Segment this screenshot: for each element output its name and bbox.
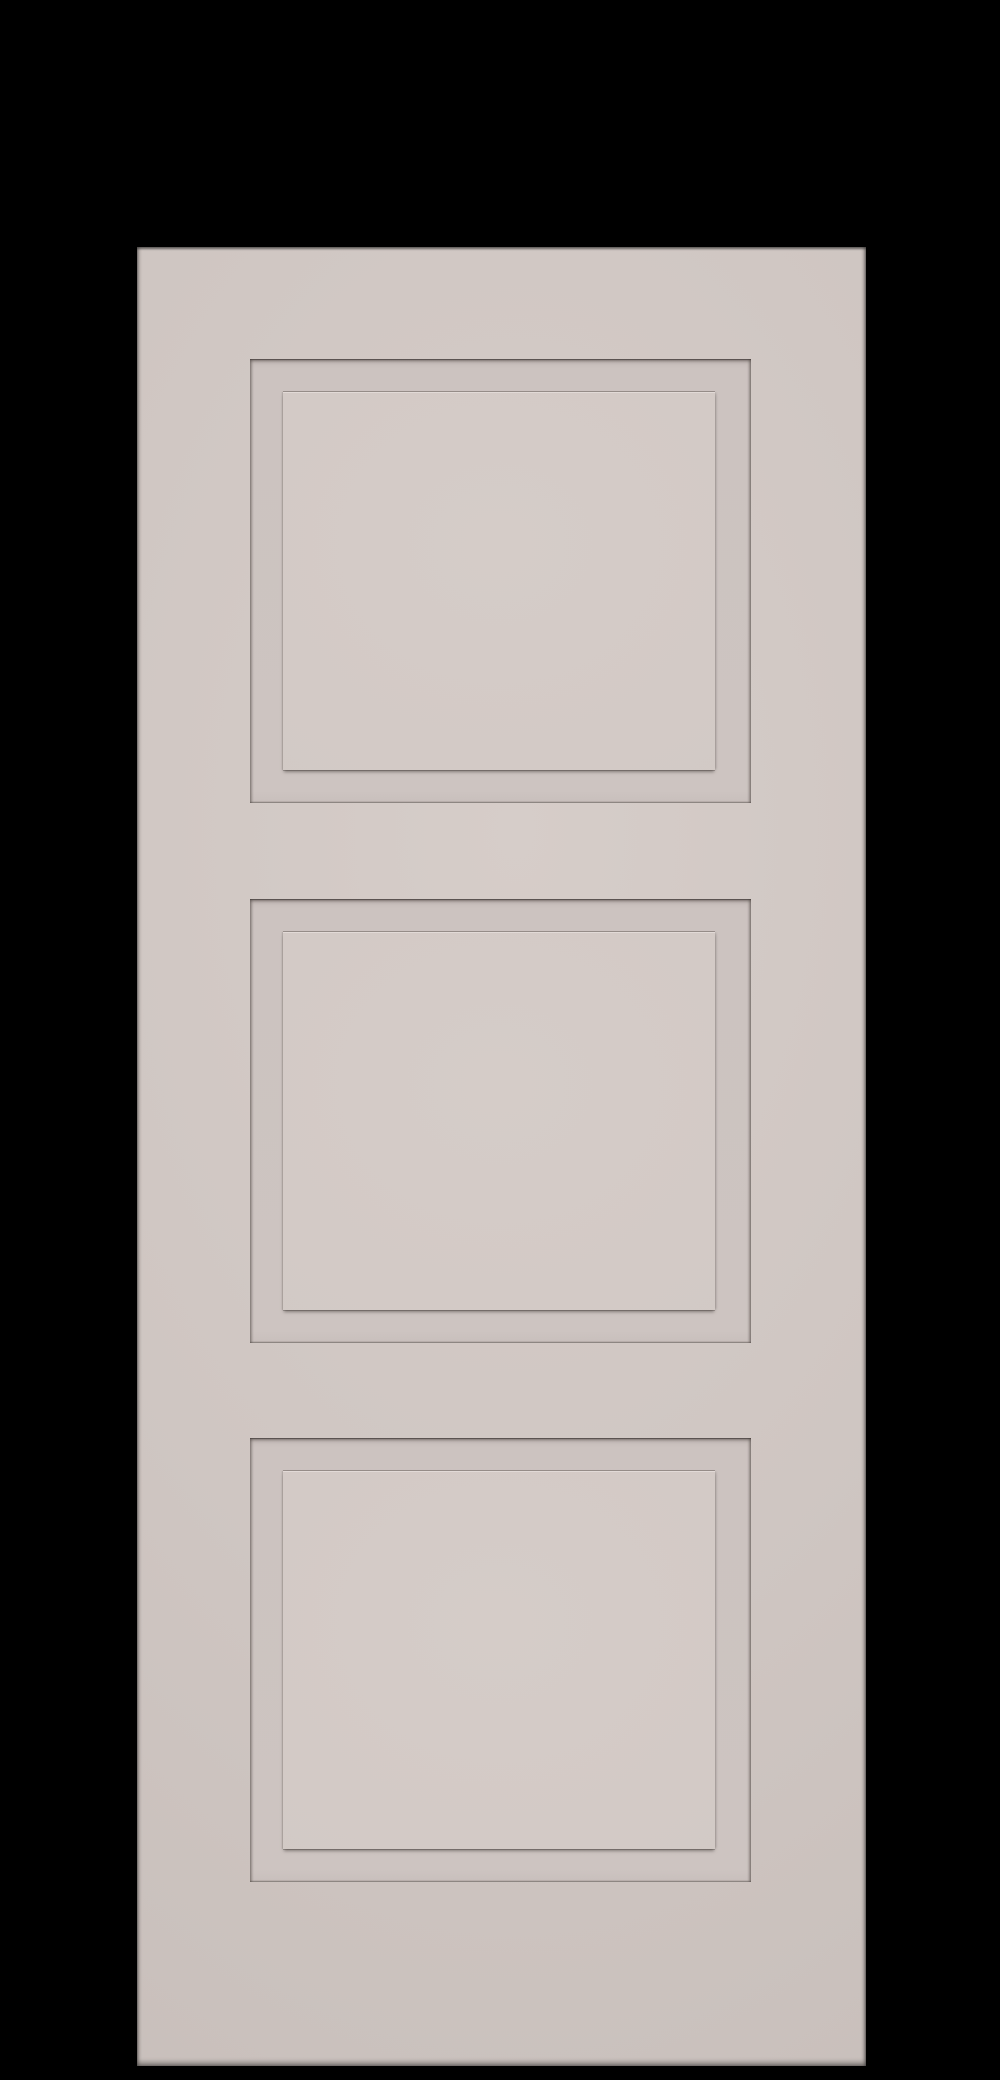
black-backdrop [0, 0, 1000, 2080]
door-panel-top-raised-center [283, 392, 715, 770]
door-slab [137, 247, 866, 2066]
door-panel-middle-raised-center [283, 932, 715, 1310]
door-panel-middle [250, 899, 751, 1343]
door-panel-bottom [250, 1438, 751, 1882]
door-panel-bottom-raised-center [283, 1471, 715, 1849]
door-panel-top [250, 359, 751, 803]
